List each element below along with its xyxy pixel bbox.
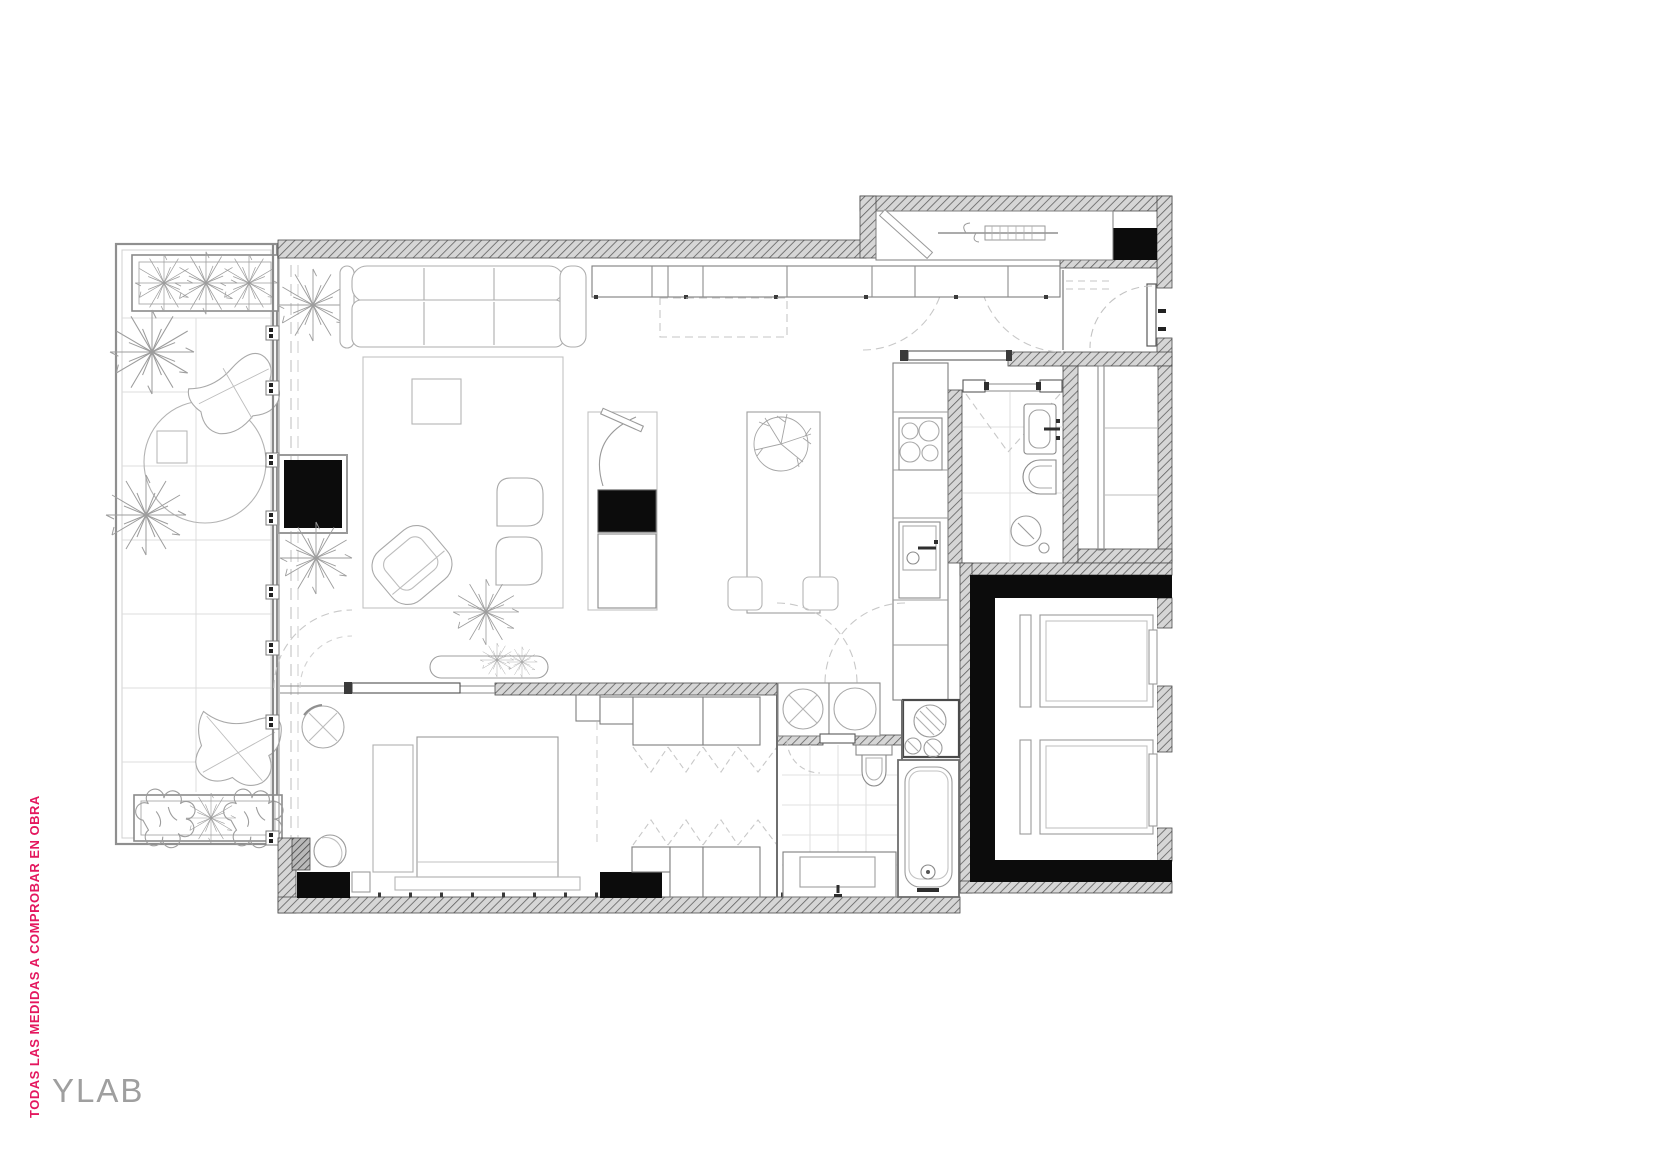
bedroom-bench [373, 745, 413, 872]
facade-column [278, 455, 347, 533]
door-swing-arc [274, 610, 352, 688]
bathroom1-basin [1024, 404, 1060, 454]
shower-planter [903, 700, 959, 757]
bathroom-2 [778, 683, 959, 897]
dining-chair [728, 577, 762, 610]
dining-table [728, 412, 838, 613]
folding-door-dashes [633, 820, 777, 845]
bathroom2-vanity [783, 852, 896, 897]
bathroom2-toilet [856, 745, 892, 786]
entry-column [1113, 228, 1157, 260]
bathroom1-sliding-door [963, 380, 1063, 392]
floor-plan-canvas: TODAS LAS MEDIDAS A COMPROBAR EN OBRA YL… [0, 0, 1655, 1170]
wardrobe-north [576, 695, 760, 745]
living-armchair [364, 517, 460, 612]
elevator-wall-top [970, 575, 1172, 598]
nightstand [352, 872, 370, 892]
tv-unit [588, 408, 657, 610]
elevator-car-2 [1020, 740, 1153, 834]
pouf-1 [497, 478, 543, 526]
coffee-table [412, 379, 461, 424]
upper-cabinets [592, 266, 1060, 297]
elevator-wall-left [970, 575, 995, 882]
elevator-door-sill [1149, 754, 1157, 826]
bathroom2-sliding-door [820, 734, 855, 743]
door-swing-arc [300, 636, 352, 688]
sofa [340, 266, 586, 348]
bedroom [274, 610, 777, 897]
column-south-2 [600, 872, 662, 898]
bed-frame [395, 877, 580, 890]
elevator-wall-bottom [970, 860, 1172, 882]
bed [417, 737, 558, 877]
hall-sliding-door [900, 350, 1012, 361]
dryer [829, 683, 880, 736]
planter-bottom [134, 789, 283, 848]
ceiling-dashed-outline [660, 298, 787, 337]
indoor-plant [453, 579, 519, 645]
elevator-car-1 [1020, 615, 1153, 707]
elevator-shaft [995, 598, 1157, 860]
dining-chair [803, 577, 838, 610]
elevator-door-sill [1149, 630, 1157, 684]
bedroom-sliding-door [280, 682, 495, 694]
facade-glazing [266, 244, 352, 845]
coat-niche [876, 210, 1113, 260]
floor-plan-drawing [0, 0, 1655, 1170]
floor-lamp [314, 835, 346, 867]
terrace [106, 244, 290, 848]
bathtub [898, 760, 959, 897]
service-shaft [1098, 366, 1158, 550]
terrace-plant [110, 310, 194, 394]
column-south-1 [297, 872, 350, 898]
folding-door-dashes [633, 747, 777, 772]
bedroom-chair [302, 705, 344, 748]
bathroom-1 [963, 380, 1063, 563]
bathroom1-shower [1011, 516, 1049, 553]
terrace-plant [106, 475, 186, 555]
indoor-plant [277, 269, 349, 341]
washer [778, 683, 829, 736]
pouf-2 [496, 537, 542, 585]
console-bench [430, 643, 548, 678]
door-swing-arc [777, 603, 857, 683]
planter-top [132, 252, 278, 314]
entry-door [1090, 284, 1166, 348]
bathroom1-toilet [1023, 460, 1056, 494]
